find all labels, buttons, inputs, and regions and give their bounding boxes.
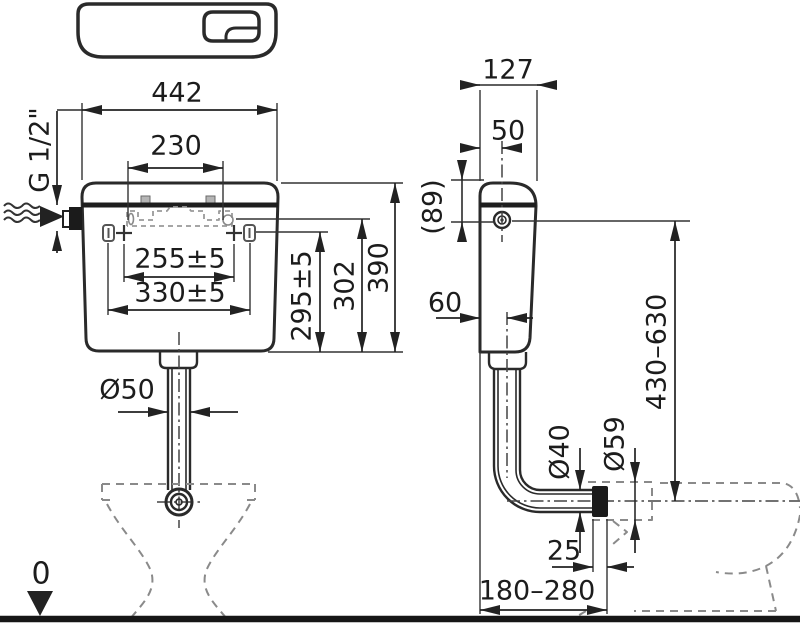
dim-fixing-height-inner: 295±5 [287, 250, 318, 341]
dim-fixing-outer: 330±5 [134, 278, 225, 309]
dim-flush-pipe-diameter: Ø50 [99, 375, 155, 406]
dim-wall-distance-range: 180–280 [479, 576, 596, 607]
dim-flush-height-range: 430–630 [642, 294, 673, 411]
dim-fixing-inner: 255±5 [134, 244, 225, 275]
dim-pipe-diameter: Ø40 [545, 424, 576, 480]
dim-lid-span: 230 [150, 131, 202, 162]
water-supply-squiggle [4, 204, 40, 223]
dim-bottom-depth: 60 [428, 288, 462, 319]
dim-inlet-offset: 50 [491, 116, 525, 147]
water-inlet-fitting [63, 207, 82, 230]
floor-level-marker-icon [27, 591, 53, 616]
cistern-installation-drawing: 442 230 255±5 330±5 Ø50 295±5 302 390 [0, 0, 800, 630]
dim-inlet-thread: G 1/2" [25, 107, 56, 192]
technical-drawing-page: 442 230 255±5 330±5 Ø50 295±5 302 390 [0, 0, 800, 630]
side-flush-bend [494, 369, 592, 512]
dim-overall-depth: 127 [482, 55, 534, 86]
rubber-connector [592, 486, 608, 517]
dim-connector-diameter: Ø59 [600, 416, 631, 472]
dim-fixing-height-outer: 302 [330, 260, 361, 312]
dim-overall-width: 442 [151, 78, 203, 109]
floor-level-label: 0 [31, 557, 50, 592]
dim-inlet-height: (89) [418, 179, 449, 234]
dual-flush-button-icon [78, 4, 276, 57]
dim-overall-height: 390 [364, 242, 395, 294]
side-view [480, 141, 800, 620]
side-dimensions: 127 50 (89) 60 430–630 Ø40 Ø59 25 [418, 55, 691, 615]
dim-insertion-depth: 25 [547, 536, 581, 567]
water-inlet-arrow-icon [40, 206, 64, 227]
side-tank-outline [480, 183, 536, 352]
